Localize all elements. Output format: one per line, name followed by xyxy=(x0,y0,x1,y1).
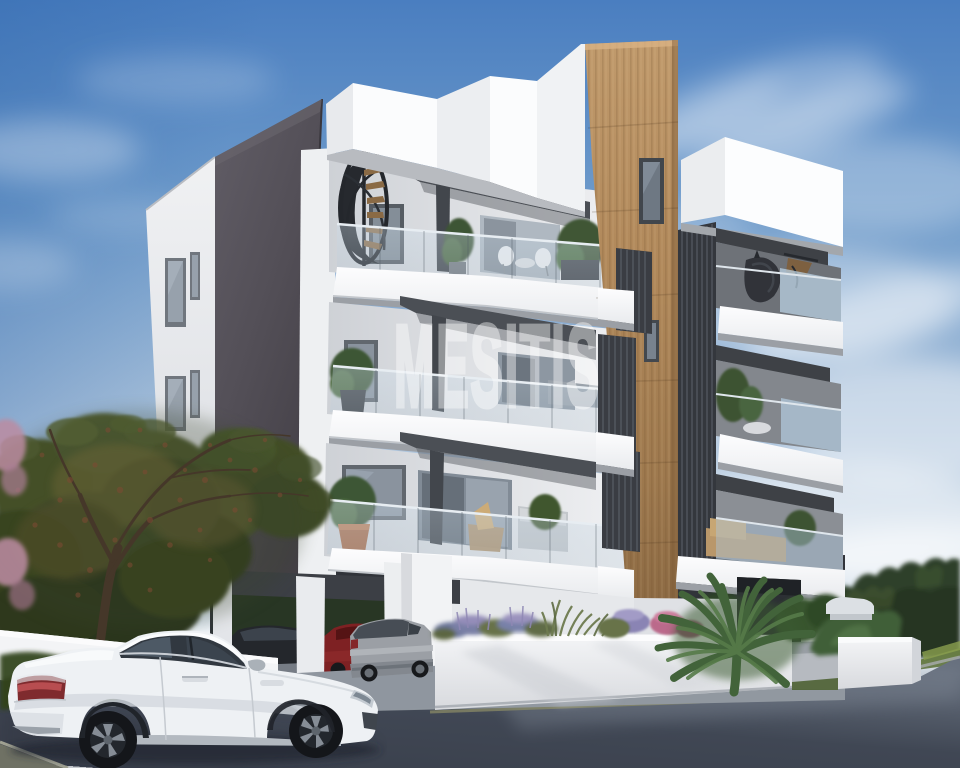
svg-text:MESITIS: MESITIS xyxy=(394,300,601,430)
